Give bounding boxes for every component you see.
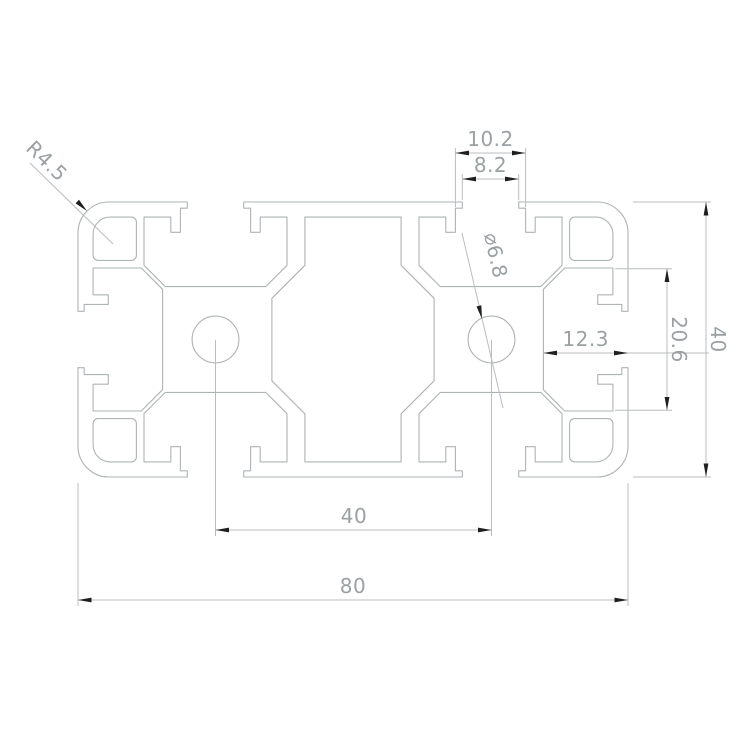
dimension-value: 20.6	[667, 316, 691, 363]
dimension-value: ⌀6.8	[479, 230, 513, 280]
arrowhead	[615, 598, 629, 603]
arrowhead	[455, 151, 469, 156]
arrowhead	[665, 397, 670, 410]
corner-cavity-top-left	[93, 217, 136, 260]
dimension-hole-spacing: 40	[216, 340, 492, 536]
arrowhead	[478, 528, 492, 533]
dimension-value: R4.5	[21, 136, 72, 186]
profile-geometry	[78, 202, 628, 477]
arrowhead	[614, 351, 628, 356]
arrowhead	[704, 464, 709, 478]
dimension-value: 80	[340, 574, 366, 598]
arrowhead	[216, 528, 230, 533]
dimension-corner-radius: R4.5	[21, 136, 113, 244]
corner-cavity-bottom-left	[93, 419, 136, 462]
dimension-value: 12.3	[562, 327, 609, 351]
profile-outer-outline	[78, 202, 628, 477]
technical-drawing: 10.2 8.2 R4.5 ⌀6.8 12.3 20.6	[0, 0, 750, 750]
arrowhead	[704, 202, 709, 216]
dimension-value: 40	[706, 326, 730, 352]
arrowhead	[477, 305, 483, 319]
dimension-profile-width: 80	[78, 483, 628, 606]
dimension-value: 8.2	[474, 153, 507, 177]
arrowhead	[543, 351, 557, 356]
dimension-slot-opening-width: 8.2	[462, 153, 518, 200]
center-cavity	[272, 217, 434, 462]
arrowhead	[665, 269, 670, 282]
arrowhead	[78, 598, 92, 603]
corner-cavity-bottom-right	[570, 419, 613, 462]
dimension-value: 10.2	[467, 127, 514, 151]
dimension-value: 40	[341, 504, 367, 528]
dimension-hole-diameter: ⌀6.8	[462, 230, 513, 408]
dimension-side-cavity-height: 20.6	[615, 269, 691, 411]
corner-cavity-top-right	[570, 217, 613, 260]
arrowhead	[462, 177, 476, 182]
arrowhead	[512, 151, 526, 156]
drawing-canvas: 10.2 8.2 R4.5 ⌀6.8 12.3 20.6	[0, 0, 750, 750]
arrowhead	[505, 177, 519, 182]
